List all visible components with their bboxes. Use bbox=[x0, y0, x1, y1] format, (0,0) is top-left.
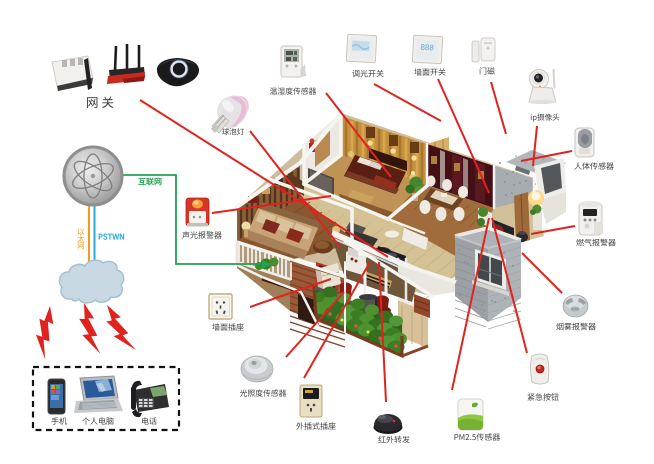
svg-text:888: 888 bbox=[420, 43, 434, 53]
